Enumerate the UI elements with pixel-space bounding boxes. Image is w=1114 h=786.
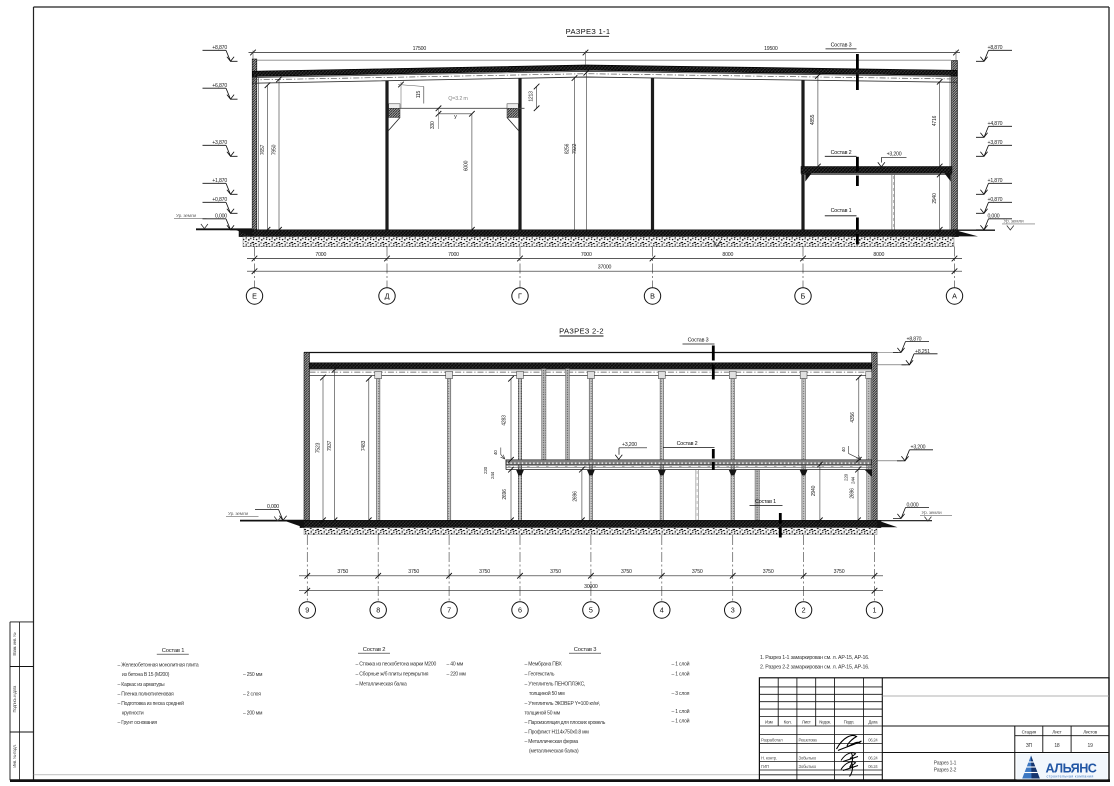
svg-text:Б: Б [801,292,806,301]
svg-text:2696: 2696 [850,488,856,499]
svg-text:+6,870: +6,870 [212,83,227,89]
svg-text:37000: 37000 [598,265,612,271]
svg-text:220: 220 [843,473,848,481]
svg-text:В: В [650,292,655,301]
svg-text:3750: 3750 [763,569,774,575]
svg-text:19: 19 [1088,743,1094,749]
svg-text:– Стяжка из пескобетона марки: – Стяжка из пескобетона марки М200 [356,661,437,667]
svg-text:(металлическая балка): (металлическая балка) [529,749,579,755]
svg-text:Дата: Дата [868,719,878,724]
svg-text:+3,200: +3,200 [911,445,926,451]
svg-text:– 2 слоя: – 2 слоя [243,692,261,698]
svg-text:А: А [952,292,957,301]
svg-text:– 1 слой: – 1 слой [672,660,690,667]
svg-text:Состав 2: Состав 2 [677,441,698,447]
svg-text:– Профлист Н114х750х0.8 мм: – Профлист Н114х750х0.8 мм [525,729,590,735]
svg-text:Состав 3: Состав 3 [831,43,852,49]
svg-text:Лист: Лист [802,719,811,724]
svg-text:Г: Г [518,292,522,301]
svg-text:4716: 4716 [932,115,938,126]
svg-text:– Грунт основания: – Грунт основания [118,720,158,726]
svg-text:Ур. земли: Ур. земли [1004,218,1024,224]
svg-text:+3,200: +3,200 [887,151,902,157]
svg-text:Листов: Листов [1083,729,1097,734]
svg-text:7483: 7483 [361,440,367,451]
svg-text:2940: 2940 [811,485,817,496]
svg-text:30000: 30000 [584,584,598,590]
svg-text:Зобытько: Зобытько [799,755,817,760]
svg-text:Стадия: Стадия [1022,729,1037,734]
svg-text:2940: 2940 [932,193,938,204]
svg-text:Q=3.2 m: Q=3.2 m [448,96,468,102]
svg-text:19500: 19500 [764,46,778,52]
svg-text:+0,870: +0,870 [212,197,227,203]
svg-text:2: 2 [802,606,806,615]
svg-text:Решетова: Решетова [799,737,818,742]
svg-text:– 40 мм: – 40 мм [447,661,464,667]
svg-text:Подп.: Подп. [844,719,855,724]
svg-text:17500: 17500 [413,46,427,52]
svg-text:Д: Д [385,292,390,301]
svg-text:115: 115 [416,90,422,98]
svg-text:3750: 3750 [550,569,561,575]
svg-text:Разработал: Разработал [761,737,783,742]
svg-text:7000: 7000 [448,252,459,258]
svg-text:Ур. земли: Ур. земли [228,511,248,517]
svg-text:3: 3 [731,606,735,615]
svg-text:1: 1 [873,606,877,615]
svg-text:Зобытько: Зобытько [799,764,817,769]
svg-text:+8,870: +8,870 [907,336,922,342]
svg-text:Состав 3: Состав 3 [574,647,596,653]
svg-text:РАЗРЕЗ 2-2: РАЗРЕЗ 2-2 [559,327,604,336]
svg-text:06.24: 06.24 [868,764,878,769]
svg-text:244: 244 [490,471,495,479]
svg-text:– 1 слой: – 1 слой [672,670,690,677]
svg-text:7: 7 [447,606,451,615]
svg-text:3750: 3750 [408,569,419,575]
svg-text:– 250 мм: – 250 мм [243,672,263,678]
svg-text:– Утеплитель ЭКОВЕР Y=100 кг/м: – Утеплитель ЭКОВЕР Y=100 кг/м², [525,701,601,707]
svg-text:Состав 3: Состав 3 [688,338,709,344]
svg-text:+8,870: +8,870 [988,45,1003,51]
svg-text:– Мембрана ПВХ: – Мембрана ПВХ [525,661,563,667]
svg-text:40: 40 [493,450,498,455]
svg-text:+1,870: +1,870 [212,178,227,184]
svg-text:толщиной 50 мм: толщиной 50 мм [525,709,561,716]
svg-text:244: 244 [850,476,855,484]
svg-text:3750: 3750 [621,569,632,575]
svg-text:8000: 8000 [722,252,733,258]
svg-text:5: 5 [589,606,593,615]
svg-text:1213: 1213 [529,91,535,102]
svg-text:Состав 1: Состав 1 [755,499,776,505]
svg-text:№док.: №док. [819,719,831,724]
svg-text:+8,251: +8,251 [915,349,930,355]
svg-text:06.24: 06.24 [868,737,878,742]
svg-text:– Каркас из арматуры: – Каркас из арматуры [118,682,166,688]
svg-text:строительная компания: строительная компания [1047,774,1094,778]
svg-text:3750: 3750 [479,569,490,575]
svg-text:Ур. земли: Ур. земли [922,510,942,516]
svg-text:Подпись и дата: Подпись и дата [12,685,17,713]
svg-text:8000: 8000 [873,252,884,258]
svg-text:Разрез 1-1: Разрез 1-1 [934,761,957,767]
svg-text:6000: 6000 [464,160,470,171]
svg-text:Разрез 2-2: Разрез 2-2 [934,768,957,774]
svg-text:из бетона В 15 (М200): из бетона В 15 (М200) [122,672,170,678]
svg-text:+3,870: +3,870 [212,140,227,146]
svg-text:Состав 1: Состав 1 [162,648,184,654]
svg-text:– Подготовка из песка средней: – Подготовка из песка средней [118,700,185,707]
svg-text:– Металлическая ферма: – Металлическая ферма [525,739,579,745]
svg-text:толщиной 50 мм: толщиной 50 мм [529,690,565,697]
svg-text:7523: 7523 [316,442,322,453]
svg-text:Инв. № подл.: Инв. № подл. [12,744,17,767]
svg-text:АЛЬЯНС: АЛЬЯНС [1046,761,1097,775]
svg-text:Изм: Изм [765,719,773,724]
svg-text:– Сборные ж/б плиты перекрытия: – Сборные ж/б плиты перекрытия [356,671,429,677]
svg-text:ЗП: ЗП [1026,743,1033,749]
svg-text:Состав 1: Состав 1 [831,208,852,214]
svg-text:2. Разрез 2-2 замаркирован см.: 2. Разрез 2-2 замаркирован см. л. АР-15,… [760,665,869,671]
svg-text:– 200 мм: – 200 мм [243,711,263,717]
svg-text:3750: 3750 [834,569,845,575]
svg-text:7950: 7950 [272,144,278,155]
svg-text:Ур. земли: Ур. земли [176,213,196,219]
svg-text:Лист: Лист [1052,729,1062,734]
svg-text:18: 18 [1054,743,1060,749]
svg-text:4: 4 [660,606,664,615]
svg-text:Состав 2: Состав 2 [831,150,852,156]
svg-text:0,000: 0,000 [907,502,919,508]
svg-text:220: 220 [483,466,488,474]
svg-text:6: 6 [518,606,522,615]
svg-text:9: 9 [305,606,309,615]
svg-text:4283: 4283 [502,415,508,426]
svg-text:+3,200: +3,200 [622,442,637,448]
svg-text:40: 40 [841,447,846,452]
svg-text:7922: 7922 [572,143,578,154]
svg-text:– 3 слоя: – 3 слоя [672,691,690,697]
svg-text:– Металлическая балка: – Металлическая балка [356,681,407,687]
svg-text:крупности: крупности [122,711,144,717]
svg-text:– 1 слой: – 1 слой [672,708,690,715]
svg-text:06.24: 06.24 [868,755,878,760]
svg-text:1. Разрез 1-1 замаркирован см.: 1. Разрез 1-1 замаркирован см. л. АР-15,… [760,655,869,661]
svg-text:8256: 8256 [565,143,571,154]
svg-text:Состав 2: Состав 2 [363,647,385,653]
svg-text:– 220 мм: – 220 мм [447,671,467,677]
svg-text:7000: 7000 [581,252,592,258]
svg-text:– 1 слой: – 1 слой [672,717,690,724]
svg-text:Взам. инв. №: Взам. инв. № [12,632,17,656]
svg-text:0,000: 0,000 [215,214,227,220]
svg-text:Н. контр.: Н. контр. [761,755,777,760]
svg-text:3750: 3750 [337,569,348,575]
svg-text:у: у [454,114,457,120]
svg-text:7937: 7937 [327,440,333,451]
svg-text:+4,870: +4,870 [988,121,1003,127]
svg-text:+1,870: +1,870 [988,178,1003,184]
svg-text:0,000: 0,000 [267,504,279,510]
svg-text:– Геотекстиль: – Геотекстиль [525,671,555,677]
svg-text:2696: 2696 [573,491,579,502]
svg-text:Е: Е [252,292,257,301]
svg-text:2696: 2696 [502,489,508,500]
svg-text:Кол.: Кол. [784,719,792,724]
svg-text:3750: 3750 [692,569,703,575]
svg-text:+8,870: +8,870 [212,45,227,51]
svg-text:ГИП: ГИП [761,764,769,769]
svg-text:+0,870: +0,870 [988,197,1003,203]
svg-text:4356: 4356 [850,412,856,423]
svg-text:+3,870: +3,870 [988,140,1003,146]
svg-text:4855: 4855 [810,114,816,125]
svg-text:0,000: 0,000 [988,214,1000,220]
svg-text:330: 330 [430,121,436,129]
svg-text:– Железобетонная монолитная п: – Железобетонная монолитная плита [118,662,199,668]
svg-text:7000: 7000 [315,252,326,258]
svg-text:8: 8 [376,606,380,615]
svg-text:– Пароизоляция для плоских кро: – Пароизоляция для плоских кровель [525,720,606,726]
svg-text:РАЗРЕЗ 1-1: РАЗРЕЗ 1-1 [566,27,611,36]
svg-text:– Пленка полиэтиленовая: – Пленка полиэтиленовая [118,692,175,698]
svg-text:– Утеплитель ПЕНОПЛЭКС,: – Утеплитель ПЕНОПЛЭКС, [525,681,586,687]
svg-text:7657: 7657 [260,144,266,155]
